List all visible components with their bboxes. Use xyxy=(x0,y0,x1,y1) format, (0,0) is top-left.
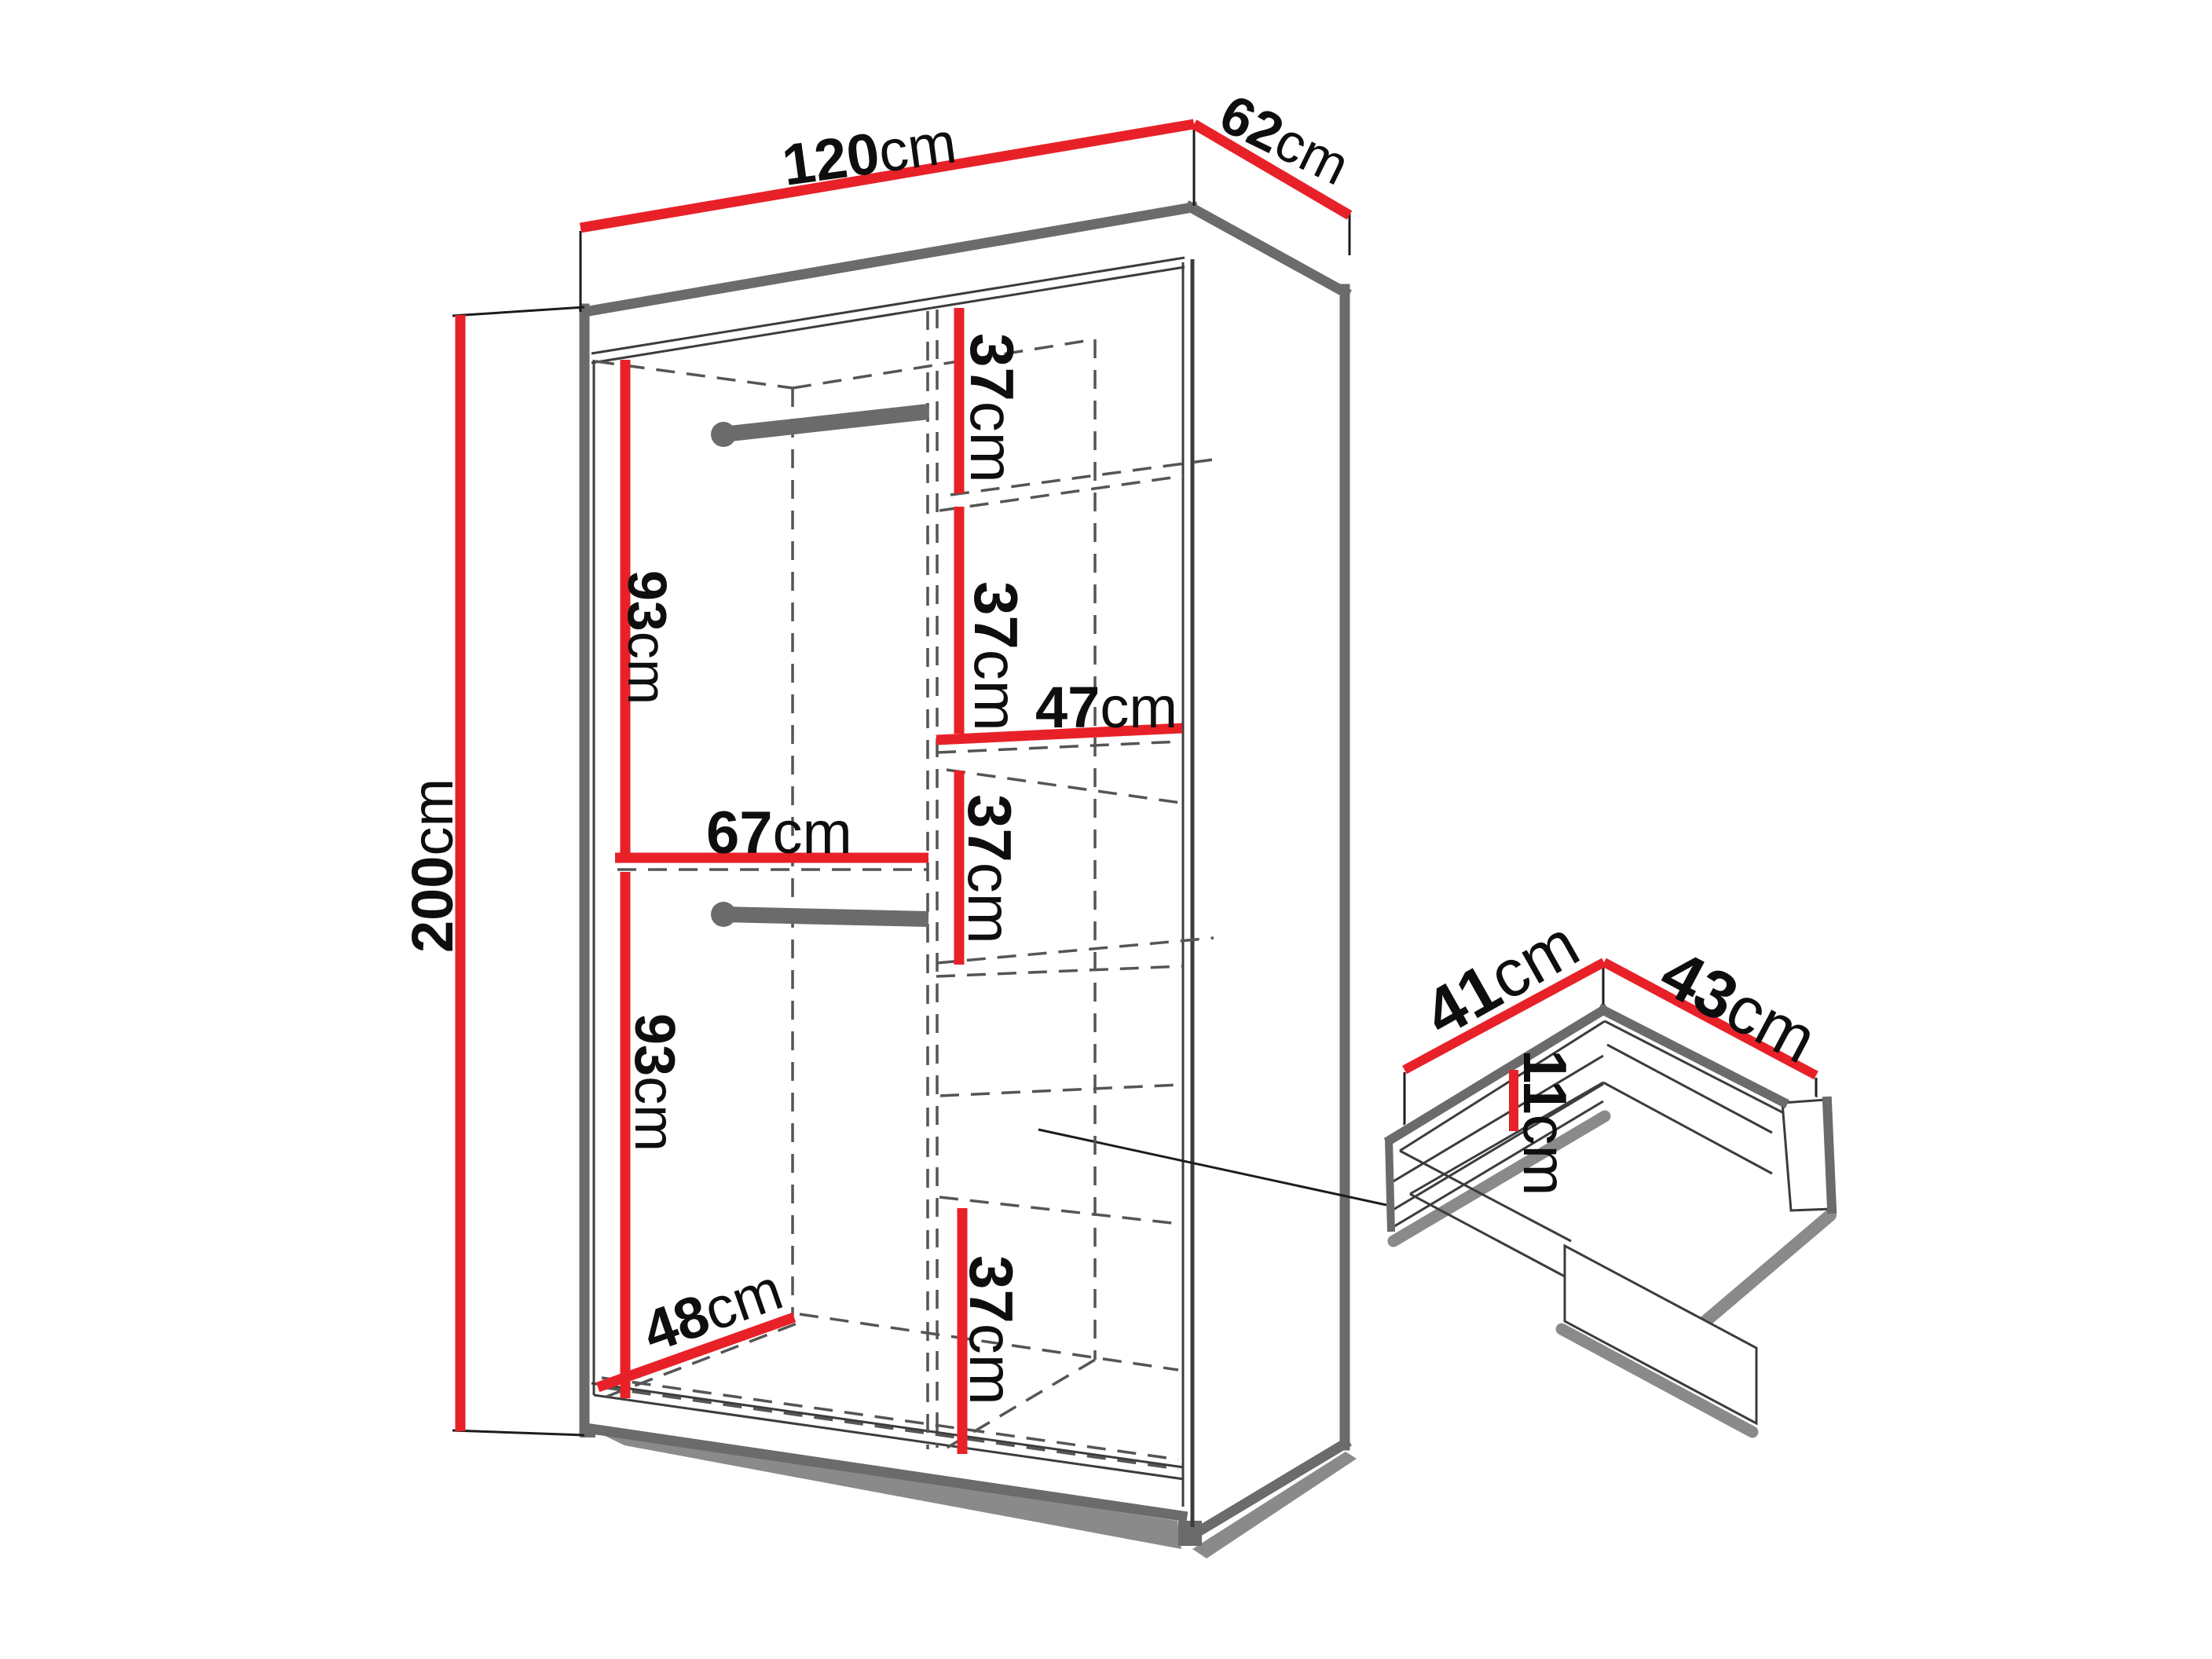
svg-text:93cm: 93cm xyxy=(617,570,678,705)
svg-text:200cm: 200cm xyxy=(400,778,465,953)
svg-text:67cm: 67cm xyxy=(706,800,852,866)
svg-text:47cm: 47cm xyxy=(1035,675,1177,740)
svg-text:37cm: 37cm xyxy=(957,1255,1026,1405)
svg-text:93cm: 93cm xyxy=(623,1013,686,1152)
svg-text:37cm: 37cm xyxy=(958,333,1027,483)
svg-text:37cm: 37cm xyxy=(961,581,1031,731)
svg-text:11cm: 11cm xyxy=(1511,1049,1580,1196)
svg-text:37cm: 37cm xyxy=(955,794,1024,944)
